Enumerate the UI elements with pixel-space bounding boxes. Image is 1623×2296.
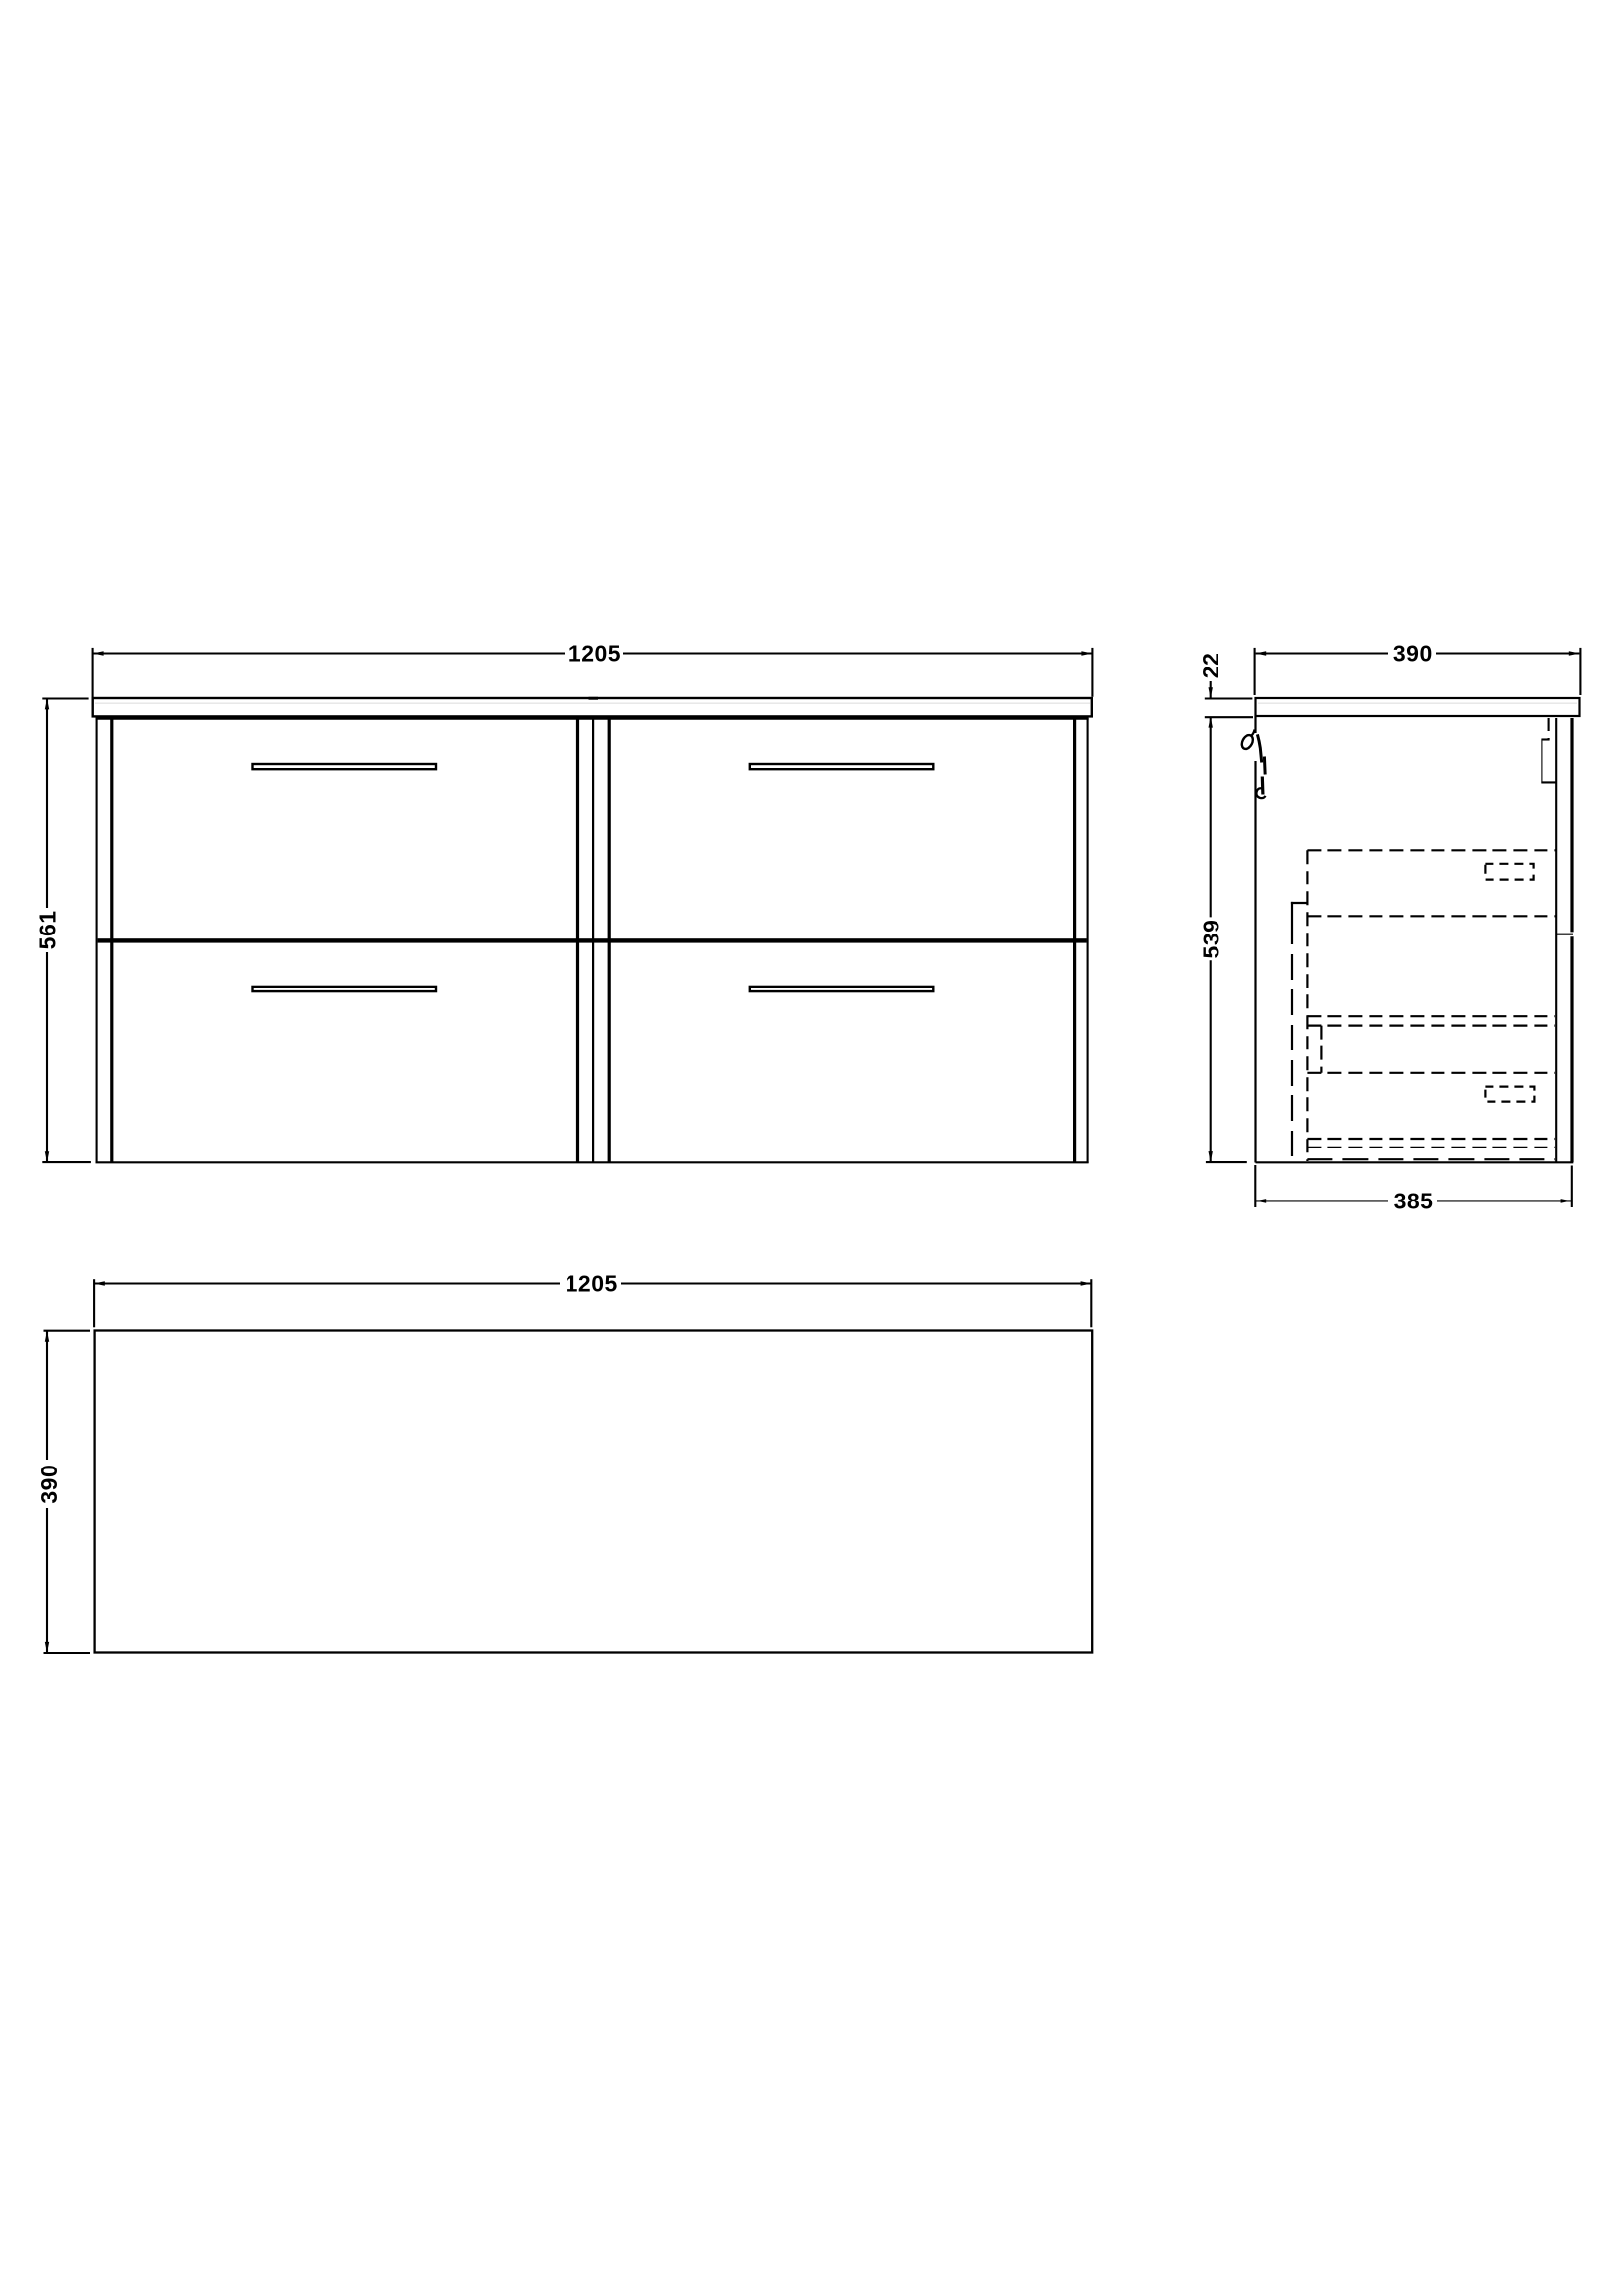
svg-text:385: 385 bbox=[1394, 1188, 1434, 1213]
svg-text:561: 561 bbox=[34, 910, 60, 949]
svg-text:1205: 1205 bbox=[566, 1271, 618, 1297]
svg-text:539: 539 bbox=[1199, 920, 1224, 959]
svg-text:390: 390 bbox=[1393, 641, 1433, 667]
svg-text:1205: 1205 bbox=[568, 641, 621, 667]
svg-text:22: 22 bbox=[1198, 653, 1223, 679]
svg-text:390: 390 bbox=[36, 1465, 62, 1504]
